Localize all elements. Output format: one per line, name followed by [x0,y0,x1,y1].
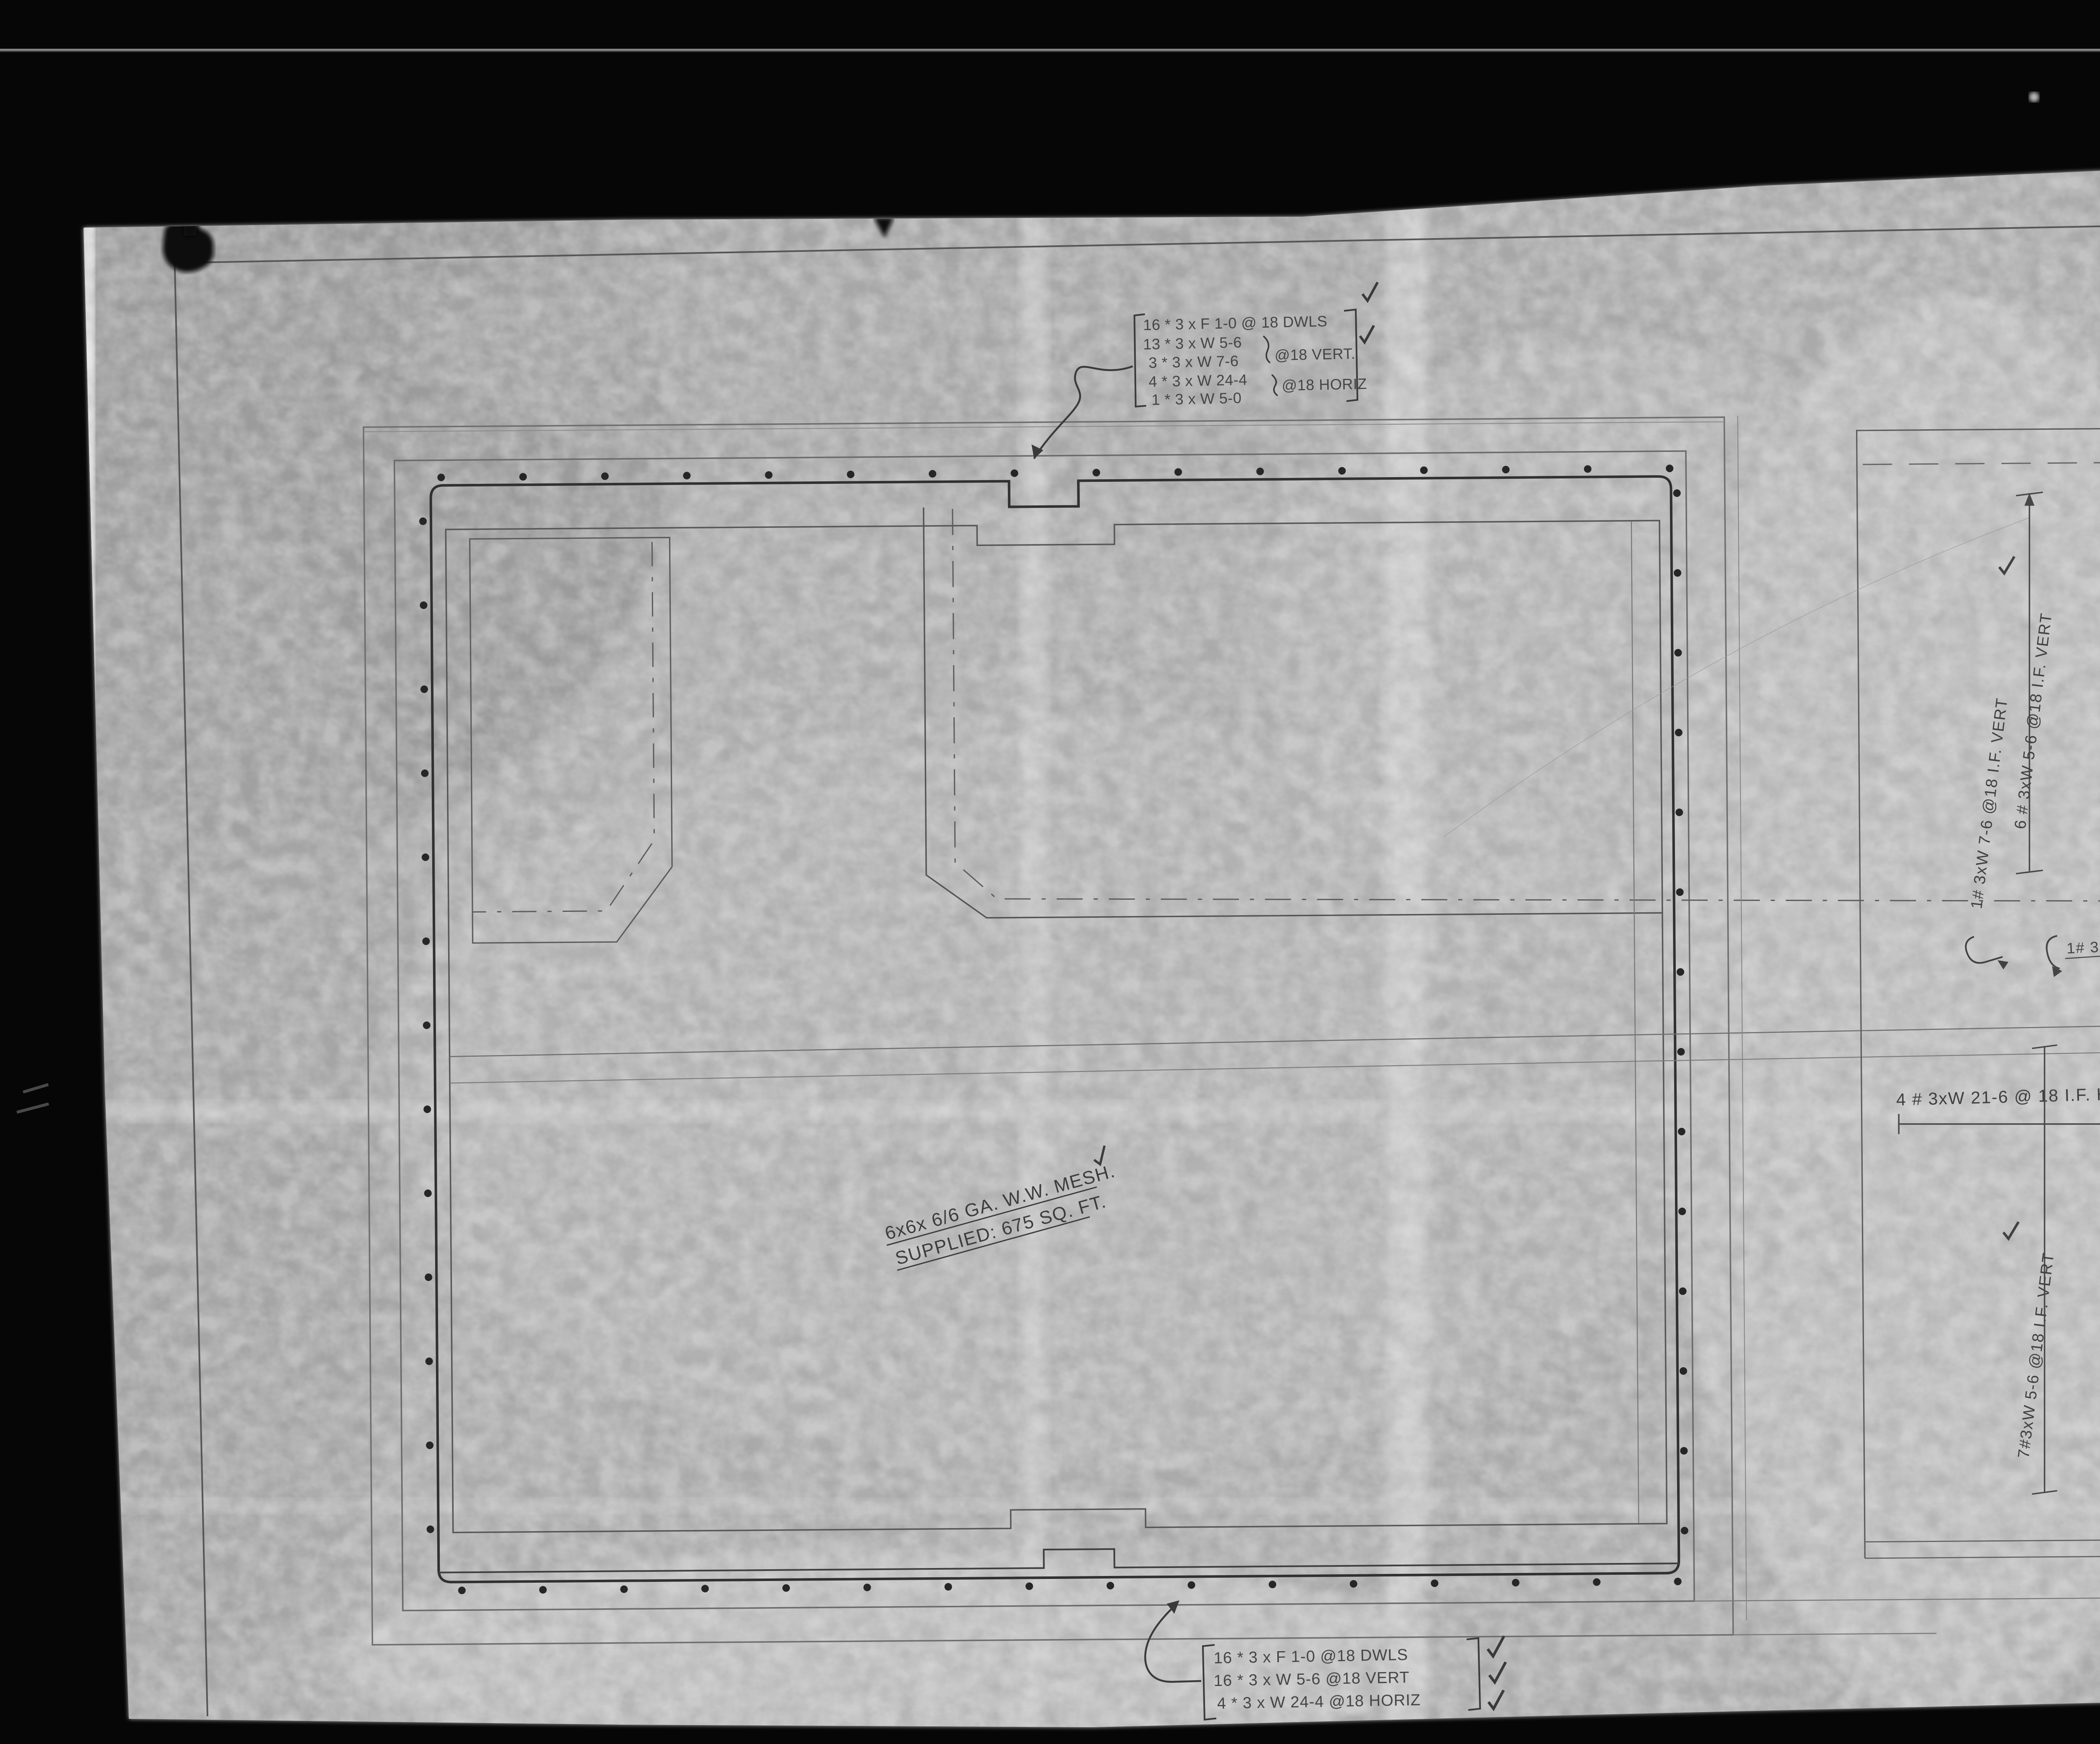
svg-text:16 * 3 x F 1-0 @18 DWLS: 16 * 3 x F 1-0 @18 DWLS [1213,1646,1408,1667]
svg-text:1 * 3 x W 5-0: 1 * 3 x W 5-0 [1151,389,1242,408]
svg-text:4 * 3 x W 24-4: 4 * 3 x W 24-4 [1148,371,1247,390]
svg-text:1# 3xW 2-6: 1# 3xW 2-6 [2066,936,2100,957]
svg-text:4 * 3 x W 24-4 @18 HORIZ: 4 * 3 x W 24-4 @18 HORIZ [1217,1691,1421,1712]
svg-text:16 * 3 x W 5-6 @18 VERT: 16 * 3 x W 5-6 @18 VERT [1213,1669,1410,1690]
svg-text:3 * 3 x W 7-6: 3 * 3 x W 7-6 [1148,352,1239,371]
svg-text:@18 HORIZ: @18 HORIZ [1281,375,1367,394]
svg-text:@18 VERT.: @18 VERT. [1274,345,1355,364]
svg-text:13 * 3 x W 5-6: 13 * 3 x W 5-6 [1143,334,1242,353]
